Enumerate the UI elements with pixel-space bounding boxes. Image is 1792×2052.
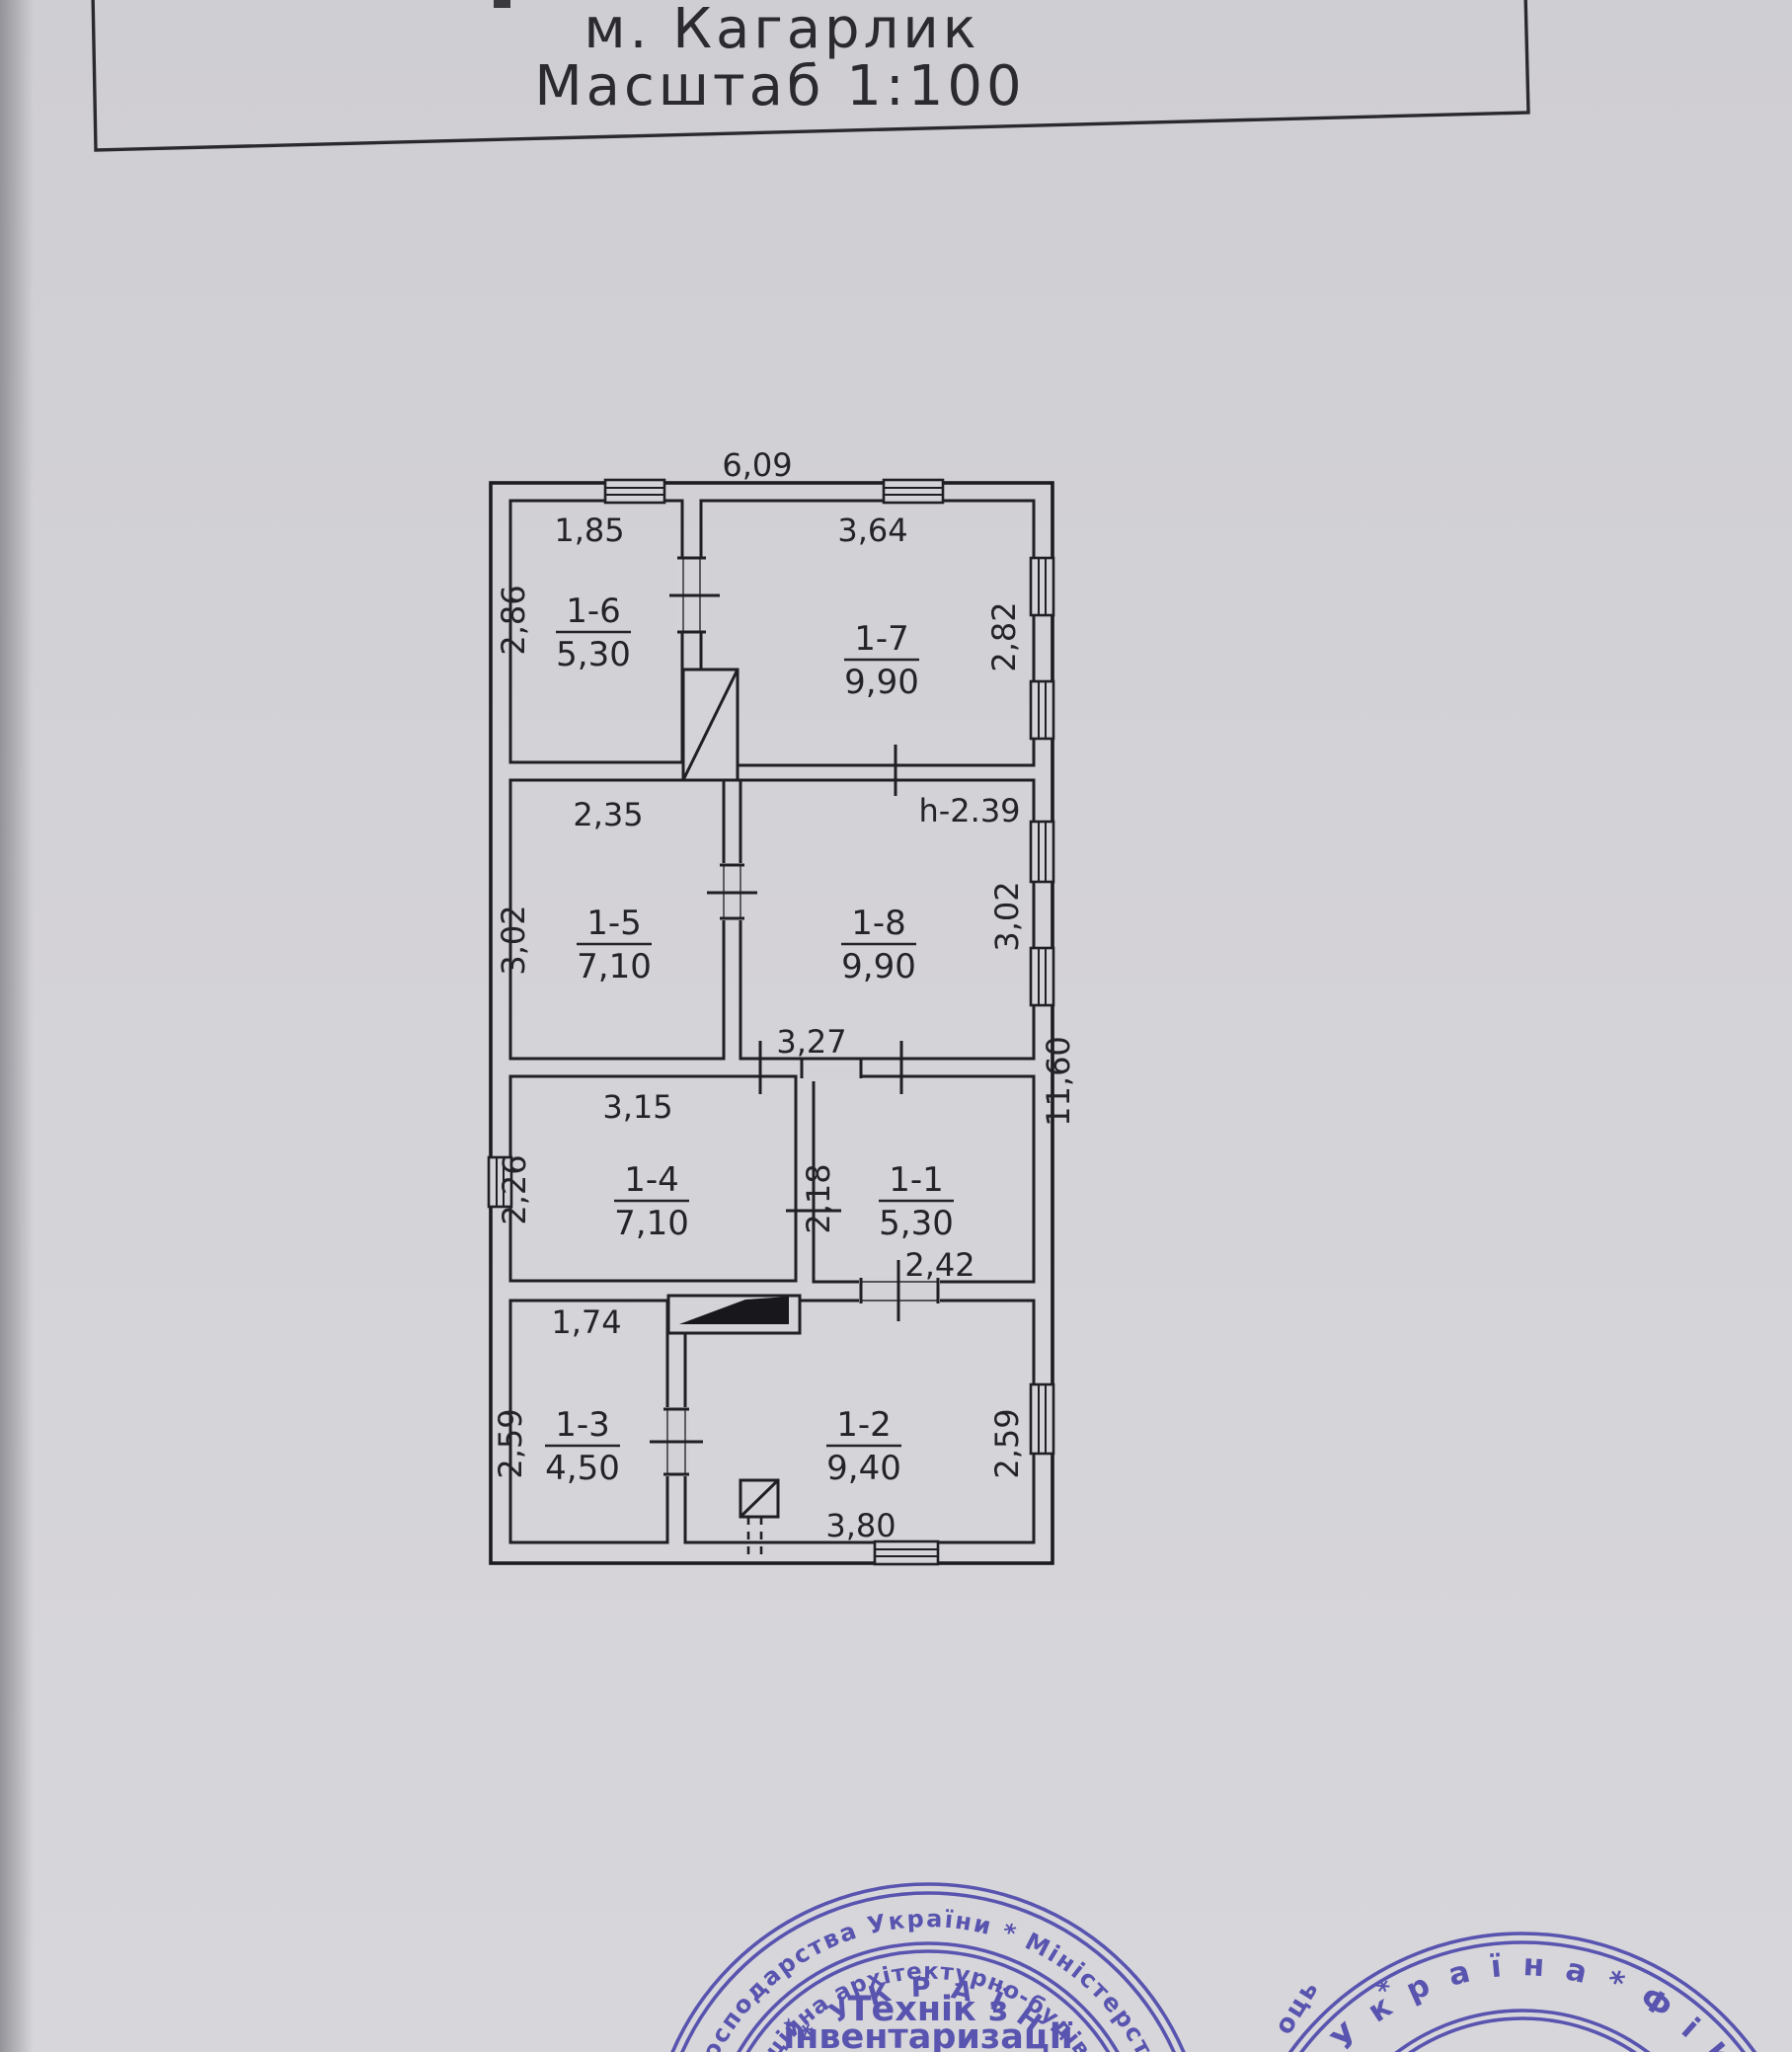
dim-1-5-height: 3,02 bbox=[495, 905, 532, 975]
room-1-2-area: 9,40 bbox=[826, 1449, 901, 1488]
dim-1-5-width: 2,35 bbox=[573, 796, 643, 833]
dim-1-3-height: 2,59 bbox=[492, 1408, 529, 1478]
room-1-3-area: 4,50 bbox=[545, 1449, 620, 1488]
dim-1-8-width: 3,27 bbox=[776, 1023, 846, 1061]
room-1-1-area: 5,30 bbox=[879, 1204, 954, 1243]
room-1-1-id: 1-1 bbox=[889, 1160, 944, 1200]
stamp-right-ring1-textpath: и к * У к р а ї н а * Ф і К bbox=[1260, 1947, 1743, 2052]
stamp-left-country-text: * У К Р А Ї Н А * bbox=[0, 0, 1063, 2051]
room-1-2-id: 1-2 bbox=[836, 1405, 892, 1445]
scanned-floor-plan-page: м. Кагарлик Масштаб 1:100 bbox=[0, 0, 1792, 2052]
dim-1-7-width: 3,64 bbox=[837, 512, 907, 549]
stamp-left-ring2-text: естаційна архітектурно-будівельна ко bbox=[0, 0, 1126, 2052]
window-right-1-8-a bbox=[1031, 822, 1053, 882]
window-right-1-7-a bbox=[1031, 558, 1053, 615]
room-1-6-id: 1-6 bbox=[566, 592, 621, 631]
dim-1-2-height: 2,59 bbox=[988, 1408, 1026, 1478]
room-1-6-area: 5,30 bbox=[556, 635, 631, 674]
stamp-left-profession-line3: нерухомого bbox=[811, 2047, 1045, 2052]
dim-1-2-width: 3,80 bbox=[825, 1507, 896, 1544]
room-1-5-id: 1-5 bbox=[586, 904, 642, 943]
title-scale: Масштаб 1:100 bbox=[534, 54, 1025, 118]
room-1-4-area: 7,10 bbox=[614, 1204, 689, 1243]
room-1-7-area: 9,90 bbox=[844, 663, 919, 702]
cut-off-text-artifact bbox=[494, 0, 510, 8]
dim-1-4-width: 3,15 bbox=[602, 1088, 672, 1126]
window-bottom-1-2 bbox=[875, 1541, 938, 1564]
window-right-1-7-b bbox=[1031, 681, 1053, 739]
dim-ceiling-height: h-2.39 bbox=[918, 792, 1020, 829]
dim-1-8-height: 3,02 bbox=[988, 881, 1026, 951]
dim-1-6-height: 2,86 bbox=[495, 585, 532, 655]
room-1-3-id: 1-3 bbox=[555, 1405, 610, 1445]
stamp-left-ring1-text: о господарства України * Міністерство ре… bbox=[0, 0, 1176, 2052]
room-1-8-id: 1-8 bbox=[851, 904, 906, 943]
chimney-dashed-flue bbox=[748, 1517, 761, 1561]
stamp-right: и к * У к р а ї н а * Ф і К оць * bbox=[1236, 1934, 1792, 2052]
window-top-1-6 bbox=[605, 480, 664, 503]
window-right-1-2 bbox=[1031, 1384, 1053, 1454]
dim-top-width: 6,09 bbox=[722, 446, 792, 484]
floor-plan-drawing: м. Кагарлик Масштаб 1:100 bbox=[0, 0, 1792, 2052]
window-top-1-7 bbox=[884, 480, 943, 503]
dim-1-6-width: 1,85 bbox=[554, 512, 624, 549]
dim-1-3-width: 1,74 bbox=[551, 1303, 621, 1341]
room-1-8-area: 9,90 bbox=[841, 947, 916, 987]
title-city: м. Кагарлик bbox=[584, 0, 979, 61]
dim-1-7-height: 2,82 bbox=[985, 601, 1023, 671]
stamp-right-ring1-text: и к * У к р а ї н а * Ф і К bbox=[1260, 1947, 1743, 2052]
dim-1-1-width: 2,42 bbox=[904, 1246, 974, 1284]
window-right-1-8-b bbox=[1031, 948, 1053, 1005]
stamp-left-ring2-textpath: естаційна архітектурно-будівельна ко bbox=[0, 0, 1126, 2052]
stamp-right-ring2-fragment: оць bbox=[1269, 1974, 1325, 2039]
room-1-4-id: 1-4 bbox=[624, 1160, 679, 1200]
stamp-left-country-textpath: * У К Р А Ї Н А * bbox=[0, 0, 1063, 2051]
room-1-5-area: 7,10 bbox=[577, 947, 652, 987]
dim-1-1-height: 2,18 bbox=[800, 1163, 837, 1233]
stamp-left: о господарства України * Міністерство ре… bbox=[0, 0, 1207, 2052]
dim-1-4-height: 2,26 bbox=[496, 1154, 533, 1224]
room-labels: 1-6 5,30 1-7 9,90 1-5 7,10 1-8 9,90 1-4 … bbox=[545, 592, 954, 1488]
door-gap-1-8-1-1 bbox=[802, 1068, 861, 1081]
stamp-left-ring1-textpath: о господарства України * Міністерство ре… bbox=[0, 0, 1176, 2052]
title-block: м. Кагарлик Масштаб 1:100 bbox=[93, 0, 1528, 150]
room-1-7-id: 1-7 bbox=[854, 619, 909, 659]
dim-right-height: 11,60 bbox=[1040, 1036, 1077, 1127]
